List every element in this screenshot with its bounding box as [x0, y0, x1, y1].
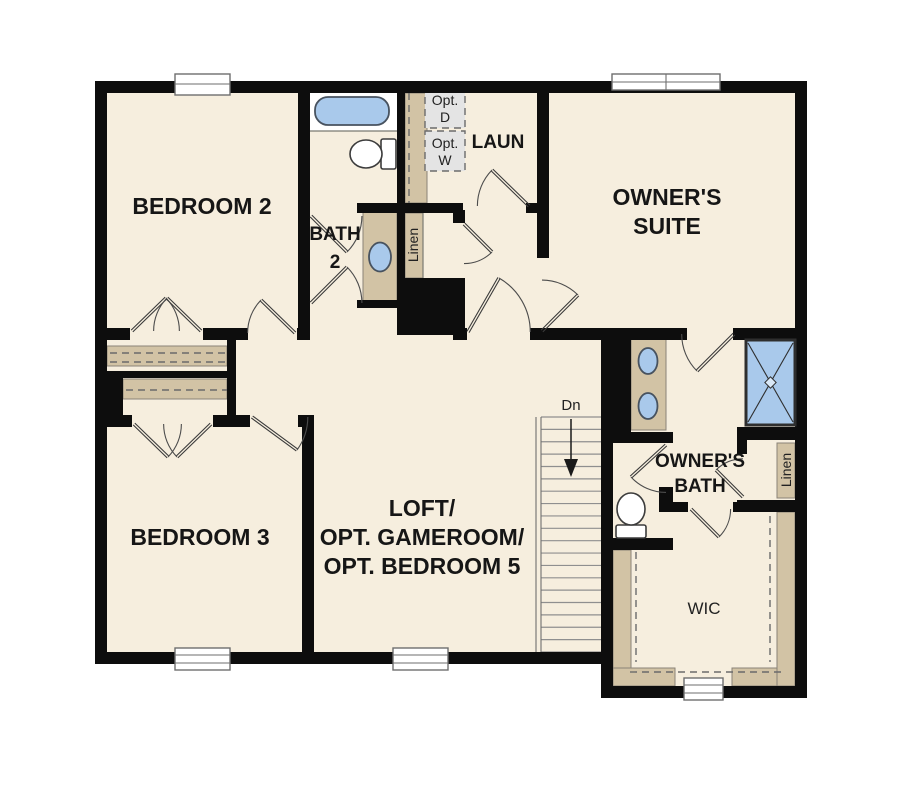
label-laundry: LAUN [472, 132, 525, 153]
wall-segment [298, 93, 310, 340]
wall-segment [227, 340, 236, 427]
bedroom2-window [175, 74, 230, 95]
label-owners-bath-line1: OWNER'S [655, 451, 745, 472]
label-opt-dryer-line1: Opt. [432, 92, 458, 108]
loft-window [393, 648, 448, 670]
label-opt-dryer-line2: D [440, 109, 450, 125]
wic-shelf-right [777, 512, 795, 686]
shower [746, 340, 795, 425]
wall-segment [203, 328, 248, 340]
bathtub [315, 97, 389, 125]
bath2-sink [369, 243, 391, 272]
wall-segment [601, 538, 673, 550]
label-owners-suite-line2: SUITE [633, 213, 701, 239]
wall-segment [95, 415, 132, 427]
wall-segment [213, 415, 250, 427]
bedroom2-closet-shelf [107, 346, 227, 366]
wall-segment [601, 432, 673, 443]
wall-segment [453, 210, 465, 223]
bath2-toilet [350, 139, 396, 169]
wall-segment [737, 427, 807, 440]
label-stairs-down: Dn [561, 397, 580, 414]
bedroom3-window [175, 648, 230, 670]
wall-segment [601, 328, 631, 433]
floor-plan: BEDROOM 2 BATH 2 LAUN OWNER'S SUITE BEDR… [0, 0, 897, 796]
label-loft-line3: OPT. BEDROOM 5 [324, 553, 521, 579]
wall-segment [95, 328, 130, 340]
label-opt-washer-line2: W [438, 152, 452, 168]
wall-segment [302, 415, 314, 664]
owners-bath-sink-1 [639, 348, 658, 374]
wall-segment [397, 93, 405, 278]
wall-segment [795, 81, 807, 698]
wall-segment [95, 81, 107, 664]
label-owners-bath-line2: BATH [674, 476, 725, 497]
wall-segment [107, 371, 233, 378]
wall-segment [733, 328, 807, 340]
label-hall-linen: Linen [405, 228, 421, 262]
floor-plan-page: BEDROOM 2 BATH 2 LAUN OWNER'S SUITE BEDR… [0, 0, 897, 796]
wic-shelf-left [613, 550, 631, 686]
label-bath2-line2: 2 [330, 252, 341, 273]
wic-shelf-bottom-left [613, 668, 675, 686]
bedroom3-closet-shelf [123, 379, 227, 399]
label-loft-line1: LOFT/ [389, 495, 456, 521]
wic-window [684, 678, 723, 700]
owners-bath-toilet [616, 493, 646, 538]
wall-segment [397, 278, 465, 335]
label-wic: WIC [687, 599, 720, 618]
label-bath-linen: Linen [778, 453, 794, 487]
label-loft-line2: OPT. GAMEROOM/ [320, 524, 525, 550]
wall-segment [357, 203, 463, 213]
wall-segment [537, 93, 549, 258]
label-bedroom2: BEDROOM 2 [132, 193, 271, 219]
wall-segment [601, 433, 613, 698]
wall-segment [453, 328, 467, 340]
label-opt-washer-line1: Opt. [432, 135, 458, 151]
wall-segment [297, 328, 310, 340]
wall-segment [737, 500, 807, 512]
label-owners-suite-line1: OWNER'S [613, 184, 722, 210]
label-bath2-line1: BATH [309, 224, 360, 245]
wall-segment [95, 652, 613, 664]
wall-segment [357, 300, 397, 308]
wall-segment [667, 502, 688, 512]
label-bedroom3: BEDROOM 3 [130, 524, 269, 550]
owners-suite-double-window [612, 74, 720, 90]
owners-bath-sink-2 [639, 393, 658, 419]
